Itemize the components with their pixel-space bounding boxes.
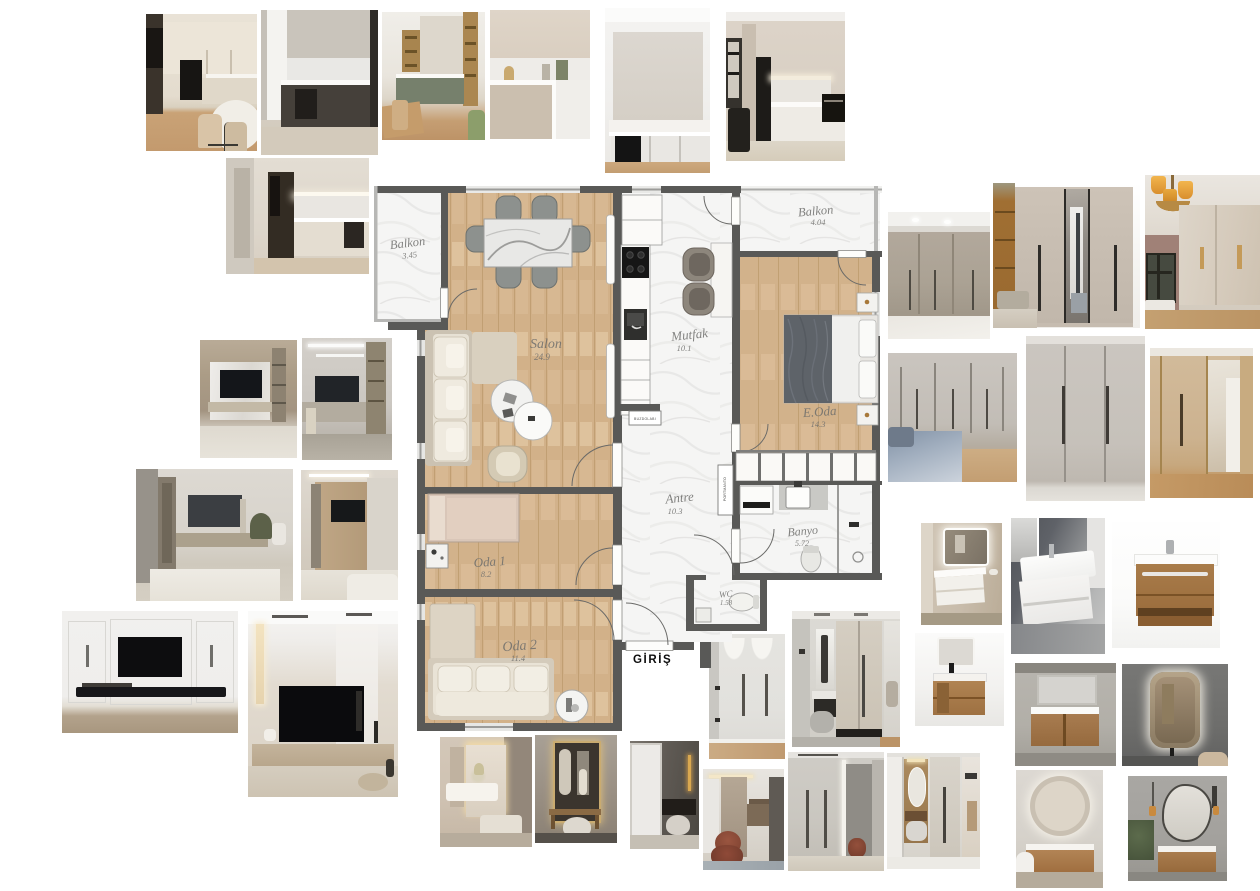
- svg-text:Banyo: Banyo: [787, 523, 819, 540]
- svg-text:Oda 1: Oda 1: [473, 553, 506, 570]
- svg-text:4.04: 4.04: [811, 217, 827, 227]
- svg-text:14.3: 14.3: [811, 419, 826, 429]
- svg-text:E.Oda: E.Oda: [801, 403, 837, 420]
- svg-text:WC: WC: [719, 588, 734, 599]
- svg-text:11.4: 11.4: [511, 653, 526, 663]
- svg-text:8.2: 8.2: [481, 569, 492, 579]
- svg-text:10.3: 10.3: [668, 506, 683, 516]
- svg-text:10.1: 10.1: [677, 343, 692, 353]
- svg-text:Antre: Antre: [664, 489, 695, 507]
- svg-text:PORTMANTO: PORTMANTO: [723, 477, 727, 501]
- svg-text:3.45: 3.45: [401, 249, 418, 261]
- svg-text:Salon: Salon: [530, 337, 562, 352]
- svg-text:BUZDOLABI: BUZDOLABI: [634, 417, 656, 421]
- svg-text:5.72: 5.72: [795, 539, 809, 548]
- svg-text:1.58: 1.58: [720, 599, 733, 607]
- svg-text:24.9: 24.9: [534, 352, 550, 362]
